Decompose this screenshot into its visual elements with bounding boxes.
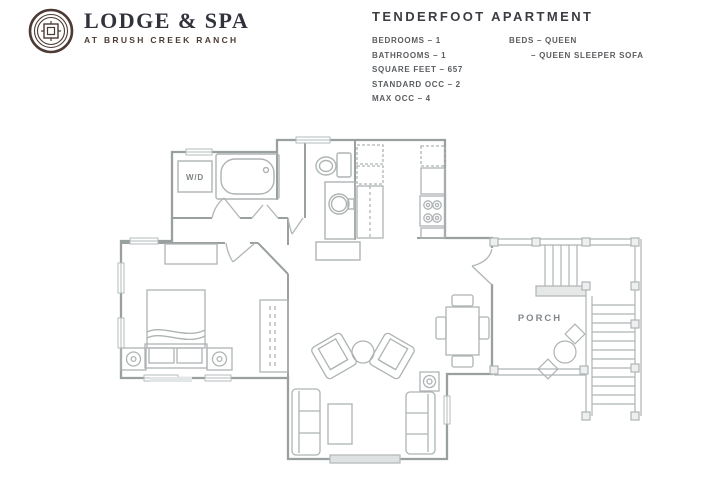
- pillow: [177, 348, 202, 363]
- closet: [260, 300, 288, 372]
- sofa-icon: [292, 389, 320, 455]
- dining-chair: [452, 356, 473, 367]
- dining-area: [436, 295, 489, 367]
- stove-icon: [420, 196, 445, 226]
- living-room: [292, 332, 439, 463]
- railing-posts: [490, 238, 639, 420]
- entry-threshold: [330, 455, 400, 463]
- bistro-table: [554, 341, 576, 363]
- nightstand: [121, 348, 146, 370]
- flyer-page: LODGE & SPA AT BRUSH CREEK RANCH TENDERF…: [0, 0, 720, 480]
- counter-cabinet: [421, 168, 445, 194]
- porch-door-gap: [488, 248, 496, 284]
- dining-chair: [452, 295, 473, 306]
- hall-closet-doors: [252, 205, 278, 218]
- porch-stairs: [490, 238, 641, 420]
- hall-door-leaf: [224, 198, 240, 218]
- lower-stairs: [592, 305, 635, 404]
- plant-icon: [424, 376, 436, 388]
- toilet-icon: [337, 153, 351, 177]
- pantry-shelf: [357, 166, 383, 184]
- kitchen: [357, 145, 445, 238]
- dining-chair: [479, 317, 489, 339]
- porch-label: PORCH: [518, 313, 562, 324]
- armchair-icon: [368, 332, 415, 380]
- dining-table: [446, 307, 479, 355]
- coffee-table: [328, 404, 352, 444]
- loveseat-icon: [406, 392, 435, 454]
- bedroom-door-leaf: [233, 243, 255, 262]
- washer-dryer-label: W/D: [186, 173, 204, 182]
- floor-plan: W/D: [0, 0, 720, 480]
- lamp-icon: [127, 352, 141, 366]
- bedroom: [121, 244, 288, 382]
- pillow: [149, 348, 174, 363]
- stair-landing: [536, 286, 586, 296]
- round-coffee-table: [352, 341, 374, 363]
- lamp-icon: [213, 352, 227, 366]
- console-table: [316, 242, 360, 260]
- upper-stairs: [545, 245, 577, 286]
- armchair-icon: [310, 332, 357, 380]
- upper-cabinet: [421, 146, 445, 166]
- bath-door-leaf: [292, 218, 303, 234]
- dresser: [165, 244, 217, 264]
- dining-chair: [436, 317, 446, 339]
- pantry-shelf: [357, 145, 383, 164]
- bathtub-icon: [216, 154, 279, 199]
- vanity-icon: [325, 182, 355, 239]
- nightstand: [207, 348, 232, 370]
